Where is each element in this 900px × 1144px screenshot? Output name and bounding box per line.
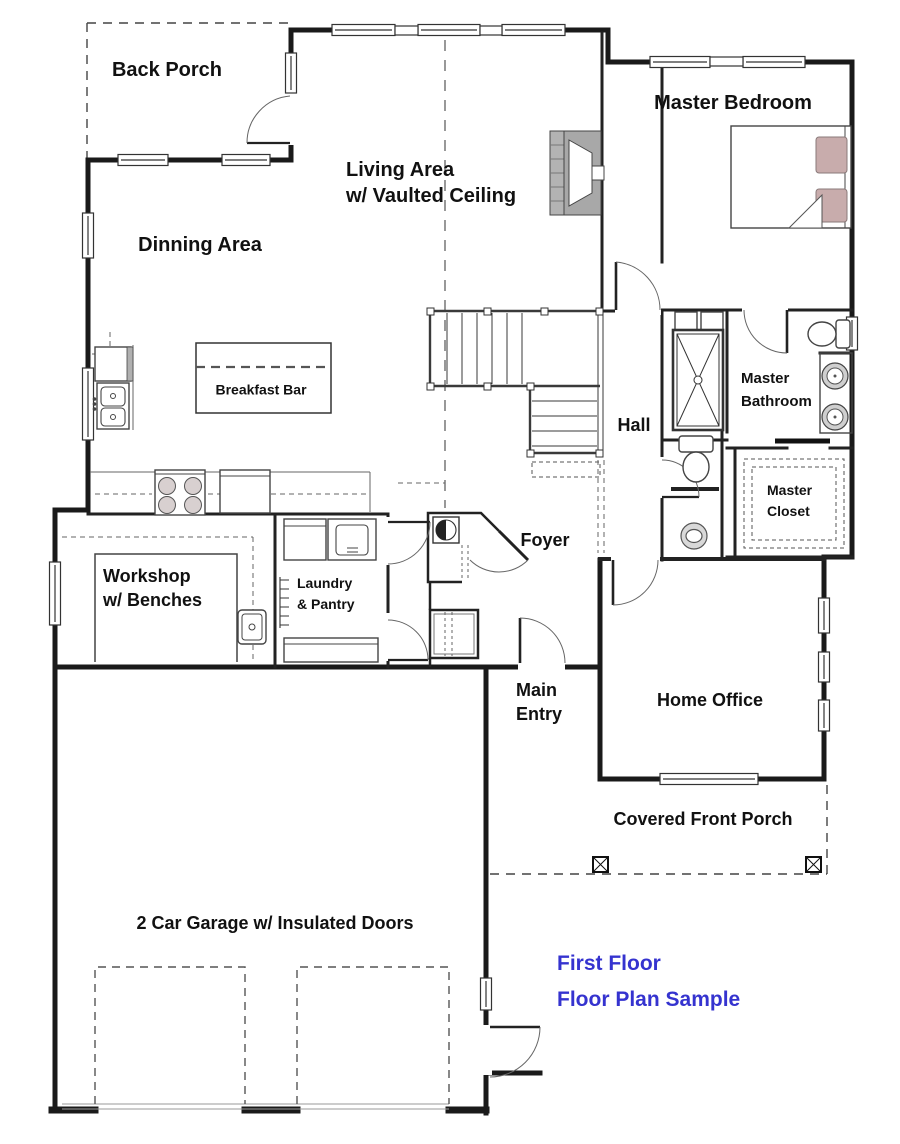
kitchen-sink <box>93 383 129 429</box>
water-heater <box>433 517 459 543</box>
label-breakfast-bar: Breakfast Bar <box>215 380 306 401</box>
closet-shelf-dashes <box>445 545 468 656</box>
room-label-covered-front-porch: Covered Front Porch <box>613 808 792 832</box>
shower <box>673 330 723 430</box>
room-label-back-porch: Back Porch <box>112 57 222 83</box>
foyer-closet-door <box>470 531 528 572</box>
refrigerator <box>95 347 133 381</box>
porch-posts <box>593 857 821 872</box>
breakfast-bar-island <box>196 343 331 413</box>
room-label-home-office: Home Office <box>657 689 763 713</box>
washer <box>284 519 326 560</box>
dryer <box>328 519 376 560</box>
vanity-sinks <box>820 353 852 433</box>
room-label-garage: 2 Car Garage w/ Insulated Doors <box>136 912 413 936</box>
room-label-main-entry: Main Entry <box>516 679 562 727</box>
porch-post <box>806 857 821 872</box>
linen-shelves <box>675 312 723 330</box>
stairs <box>427 308 603 477</box>
room-label-dinning-area: Dinning Area <box>138 232 262 258</box>
room-label-master-bedroom: Master Bedroom <box>654 90 812 116</box>
room-label-master-closet: Master Closet <box>767 480 812 522</box>
laundry-bench <box>284 638 378 662</box>
workshop-sink <box>238 610 266 644</box>
room-label-foyer: Foyer <box>520 529 569 553</box>
bed <box>731 126 851 228</box>
master-bathroom-fixtures <box>673 312 852 549</box>
porch-post <box>593 857 608 872</box>
stair-posts <box>427 308 603 457</box>
back-porch-boundary <box>87 23 291 158</box>
stove <box>155 470 205 515</box>
pedestal-sink <box>681 523 707 549</box>
kitchen <box>90 332 370 515</box>
understair-outline <box>532 462 600 477</box>
coat-hooks <box>280 577 289 628</box>
floor-plan: Back Porch Master Bedroom Living Area w/… <box>0 0 900 1144</box>
room-label-master-bathroom: Master Bathroom <box>741 368 812 413</box>
toilet <box>679 436 713 482</box>
front-door <box>520 618 565 663</box>
plan-caption: First Floor Floor Plan Sample <box>557 946 740 1018</box>
dishwasher <box>220 470 270 513</box>
garage-side-door <box>490 1027 540 1077</box>
room-label-hall: Hall <box>617 414 650 438</box>
room-label-workshop: Workshop w/ Benches <box>103 565 202 613</box>
master-bathroom-door <box>744 310 787 353</box>
room-label-laundry-pantry: Laundry & Pantry <box>297 573 355 615</box>
toilet-2 <box>808 320 850 348</box>
home-office-door <box>613 560 658 605</box>
fireplace <box>550 131 604 215</box>
room-label-living-area: Living Area w/ Vaulted Ceiling <box>346 157 516 210</box>
garage-doors <box>62 967 449 1109</box>
pillow <box>816 137 847 173</box>
back-porch-door <box>247 96 290 143</box>
master-bedroom-door <box>616 262 660 310</box>
kitchen-hall-door <box>388 522 430 564</box>
